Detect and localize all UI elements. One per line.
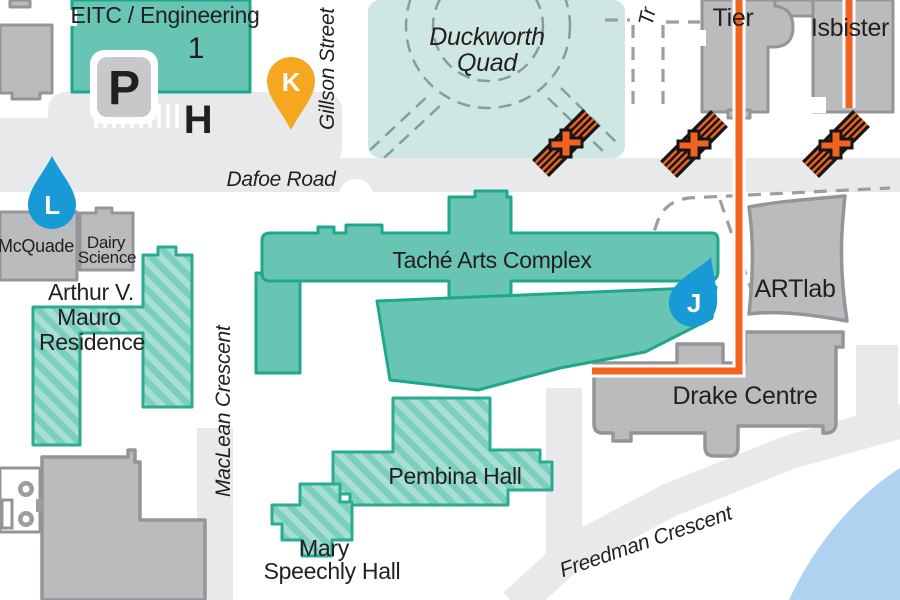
facility-circle-hole (23, 486, 30, 493)
label-maclean-crescent: MacLean Crescent (212, 324, 235, 497)
label-mary-2: Speechly Hall (264, 558, 401, 584)
parking-icon[interactable]: P (90, 50, 158, 124)
label-eitc: EITC / Engineering (71, 2, 260, 28)
campus-map: P H K L J EITC / Engineering 1 Duckworth… (0, 0, 900, 600)
gillson-intersection-notch (339, 179, 373, 213)
pin-k-letter: K (282, 67, 301, 97)
label-tache: Taché Arts Complex (392, 247, 592, 273)
facility-rect (2, 500, 12, 528)
facility-tab (36, 499, 44, 512)
h-symbol: H (184, 98, 213, 142)
label-duckworth-2: Quad (457, 49, 518, 77)
pin-j-letter: J (687, 288, 701, 318)
building-top-left[interactable] (0, 25, 52, 99)
label-dairy-2: Science (78, 248, 136, 267)
label-artlab: ARTlab (754, 275, 835, 303)
label-mauro-1: Arthur V. (48, 279, 134, 305)
label-mauro-3: Residence (39, 329, 145, 355)
building-bottom-left[interactable] (42, 450, 205, 600)
tier-notch (699, 30, 706, 46)
label-dafoe-road: Dafoe Road (226, 168, 337, 191)
label-gillson-street: Gillson Street (316, 7, 339, 130)
label-drake: Drake Centre (672, 382, 817, 410)
label-street-partial: Tr (635, 4, 661, 27)
label-isbister: Isbister (811, 14, 889, 42)
isbister-notch (811, 97, 826, 113)
label-mcquade: McQuade (0, 236, 74, 256)
parking-letter: P (108, 62, 140, 115)
building-tache-arm[interactable] (256, 273, 300, 373)
campus-map-svg: P H K L J EITC / Engineering 1 Duckworth… (0, 0, 900, 600)
water (789, 468, 900, 600)
label-mauro-2: Mauro (57, 304, 121, 330)
label-duckworth-1: Duckworth (429, 23, 544, 51)
building-small-top-left[interactable] (10, 0, 30, 7)
label-pembina: Pembina Hall (388, 463, 521, 489)
label-eitc-1: 1 (188, 32, 204, 65)
pin-l-letter: L (44, 190, 60, 220)
facility-circle-hole (23, 516, 30, 523)
label-tier: Tier (713, 4, 754, 32)
road-stub-drake (856, 345, 898, 425)
